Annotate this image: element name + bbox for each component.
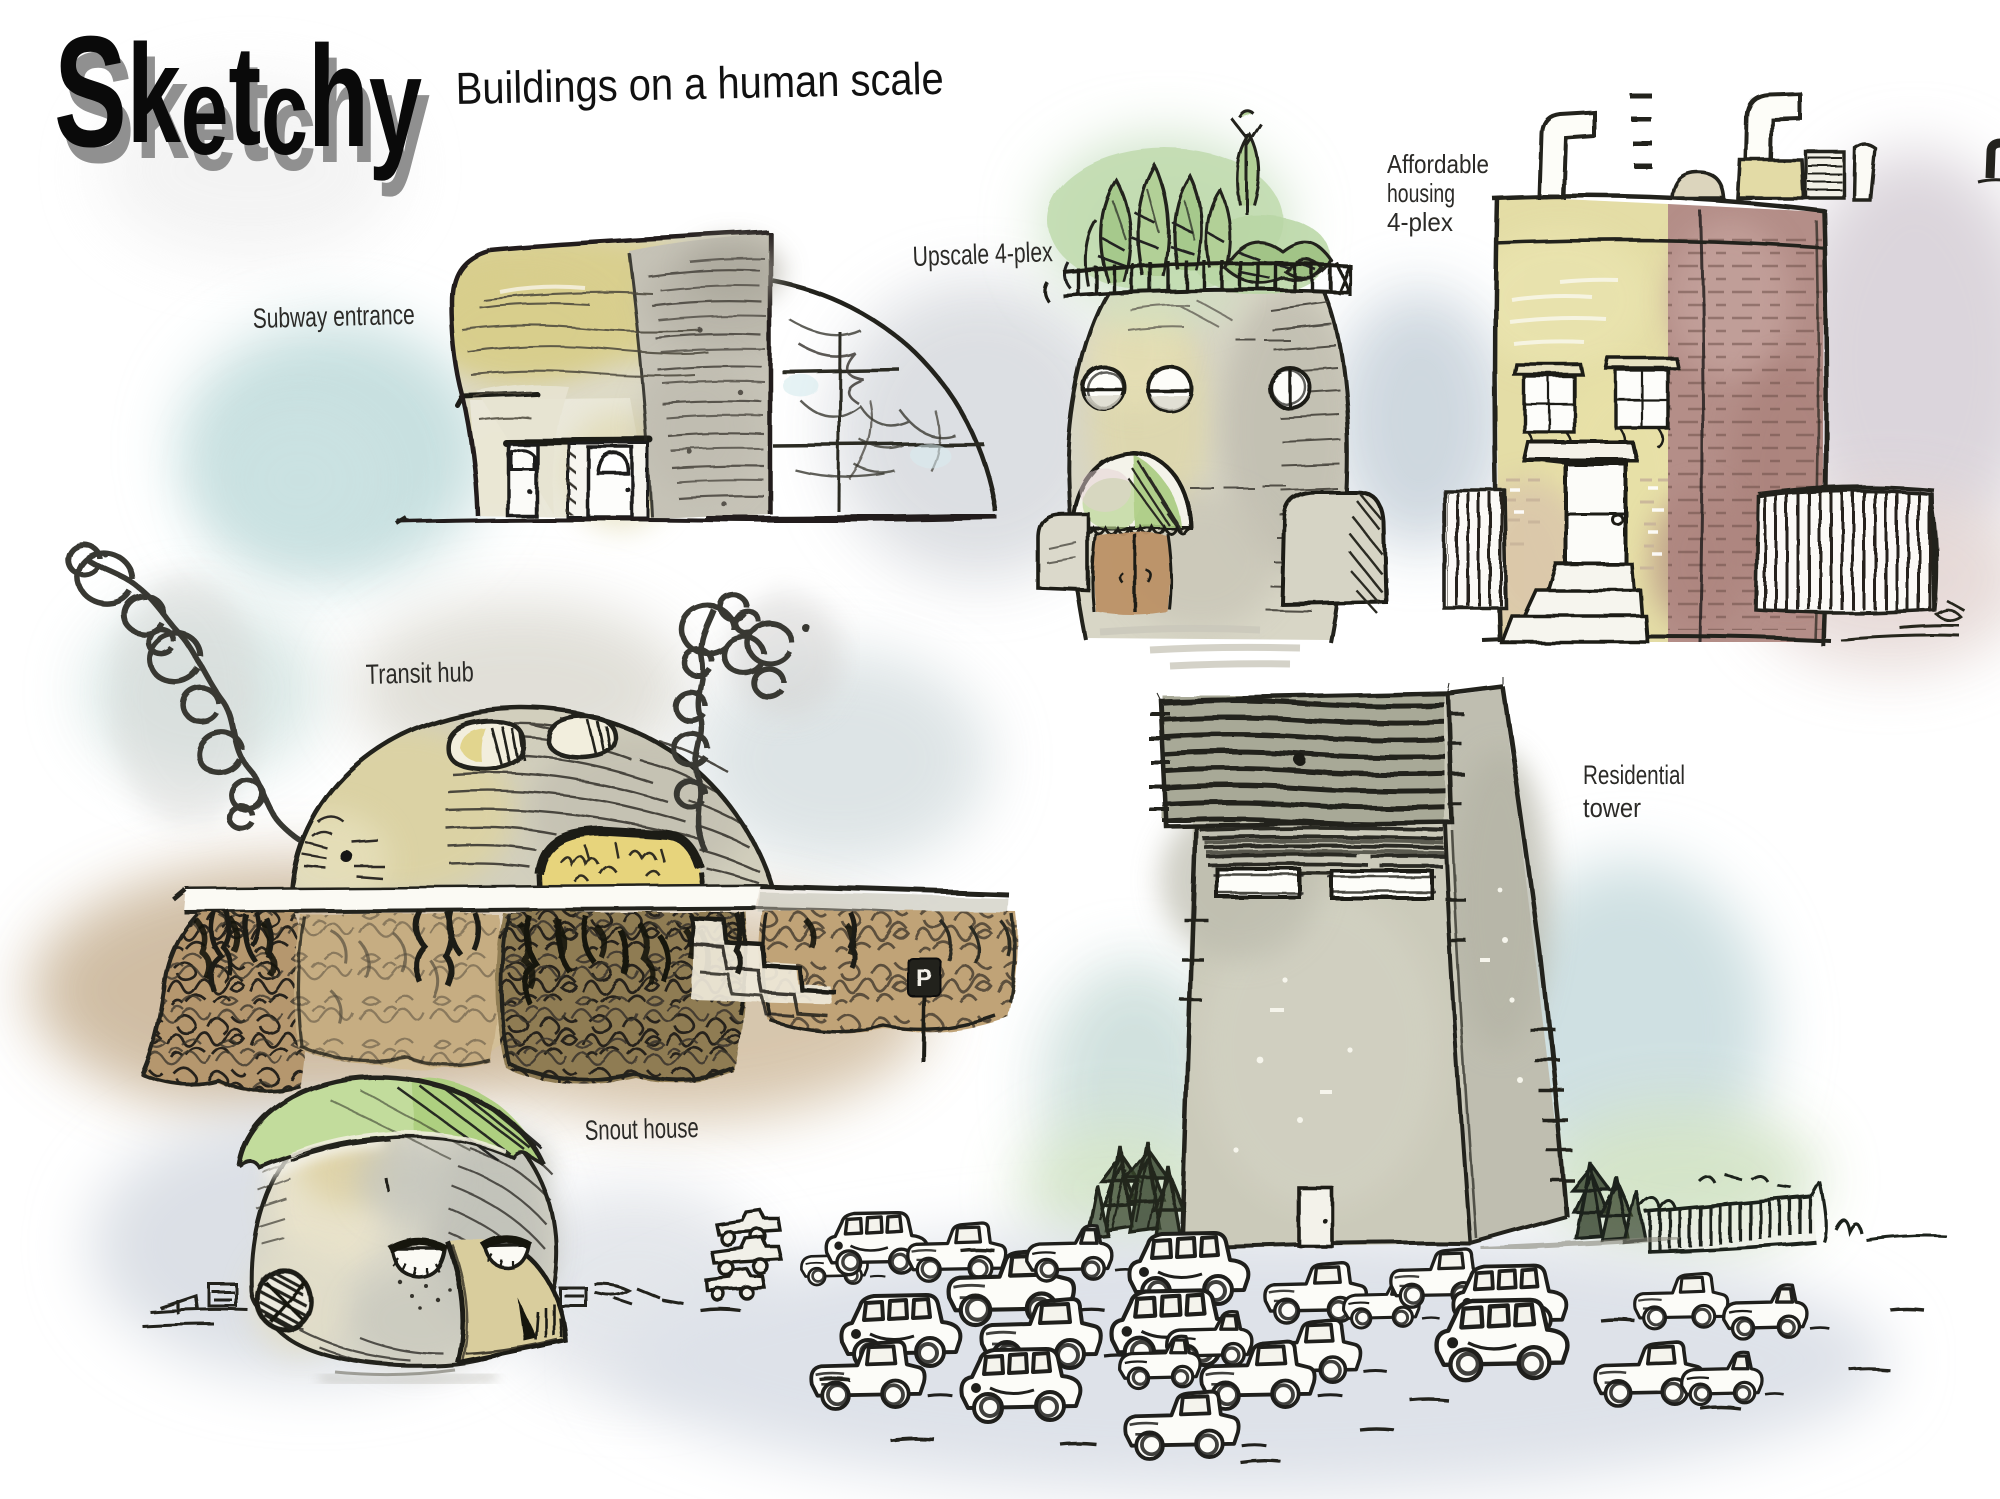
svg-text:P: P [916, 965, 932, 992]
svg-text:Snout house: Snout house [584, 1112, 699, 1146]
svg-text:Upscale 4-plex: Upscale 4-plex [912, 236, 1053, 272]
svg-text:Subway entrance: Subway entrance [252, 299, 415, 334]
svg-text:Affordable: Affordable [1387, 149, 1489, 179]
svg-text:4-plex: 4-plex [1387, 207, 1453, 237]
svg-text:Transit hub: Transit hub [365, 656, 474, 690]
svg-text:Residential: Residential [1583, 760, 1685, 790]
svg-text:tower: tower [1583, 793, 1641, 823]
svg-text:Sketchy: Sketchy [54, 4, 422, 182]
svg-text:Buildings on a human scale: Buildings on a human scale [455, 53, 944, 114]
svg-text:housing: housing [1387, 178, 1455, 208]
